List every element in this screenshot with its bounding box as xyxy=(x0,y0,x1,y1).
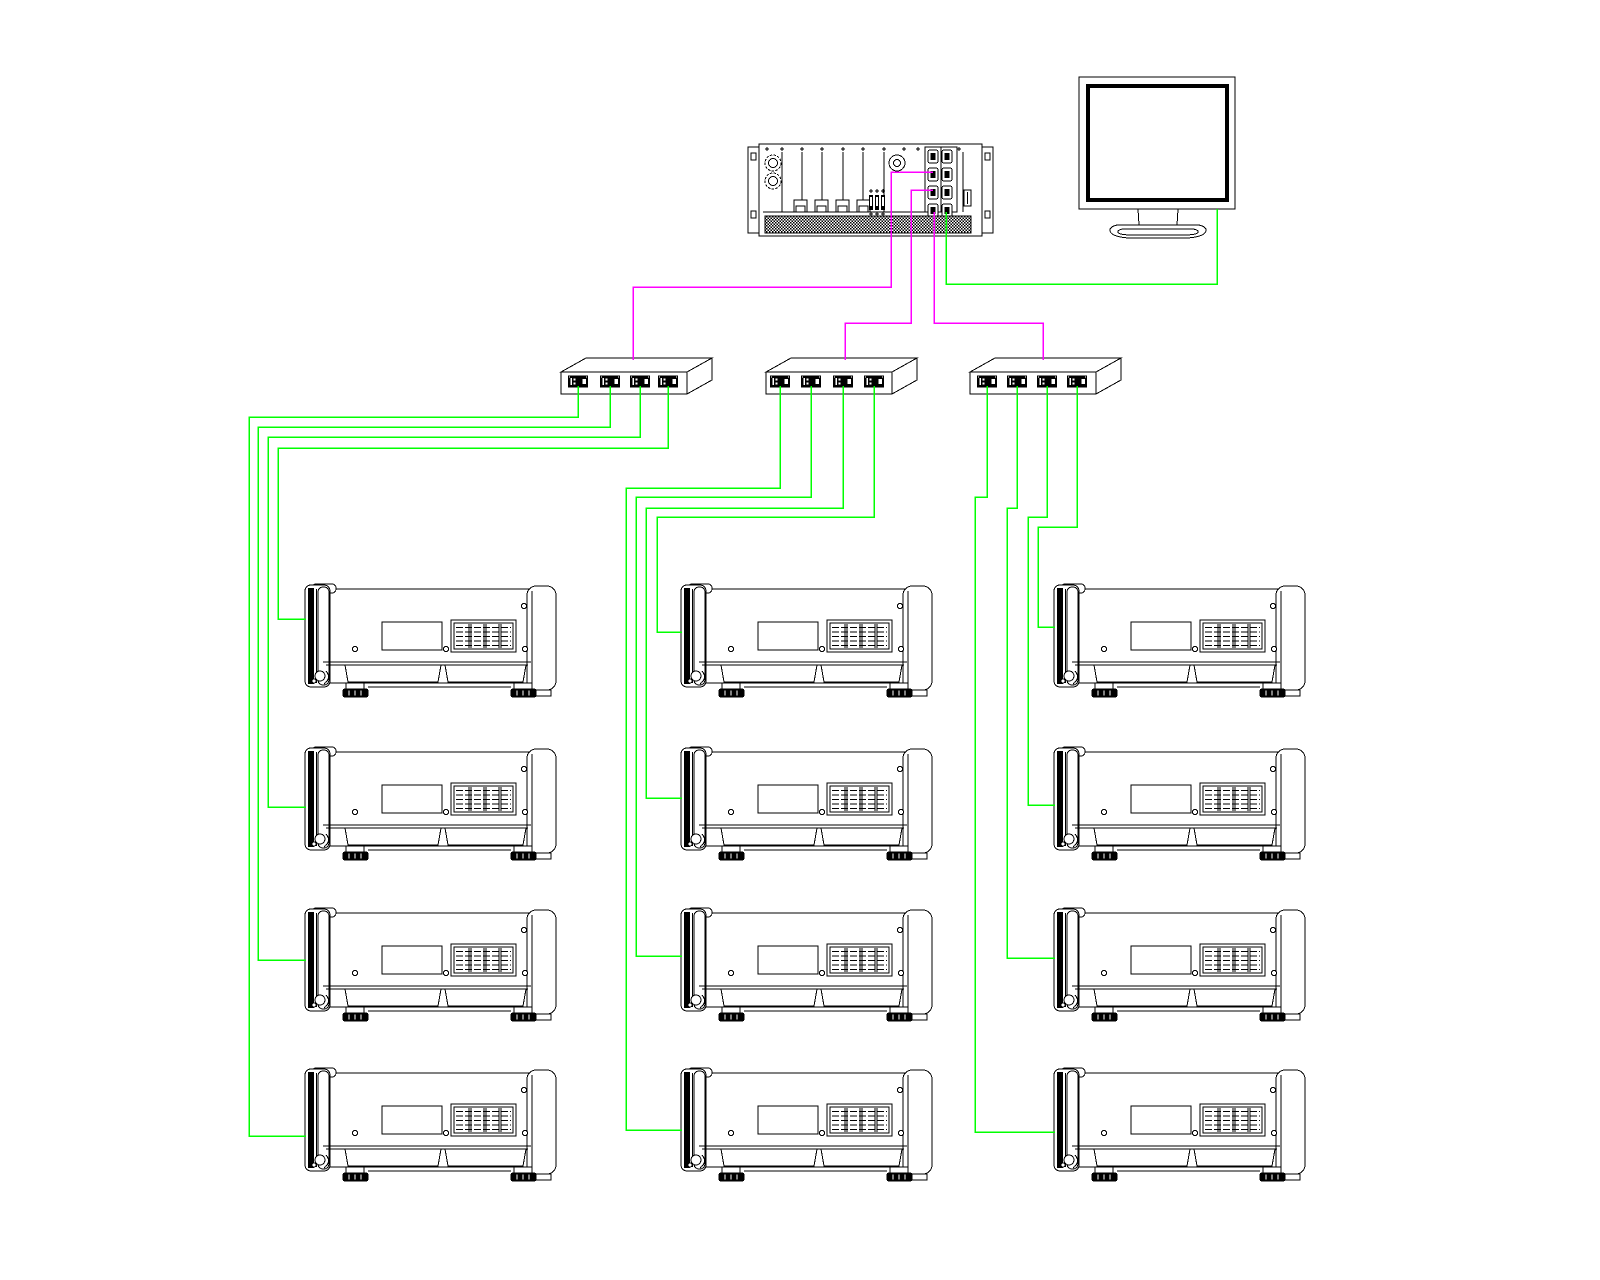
rack-media-server xyxy=(748,144,993,236)
projector-chassis xyxy=(681,1068,932,1181)
video-port-icon xyxy=(928,150,938,163)
projector-chassis xyxy=(1054,747,1305,860)
projector-left-4 xyxy=(305,1068,556,1181)
projector-chassis xyxy=(305,1068,556,1181)
video-port-icon xyxy=(942,168,952,181)
projector-middle-3 xyxy=(681,908,932,1021)
splitter-port-icon xyxy=(865,376,884,387)
video-port-icon xyxy=(928,168,938,181)
video-output-cards xyxy=(925,147,957,217)
projector-left-2 xyxy=(305,747,556,860)
projector-middle-4 xyxy=(681,1068,932,1181)
cabling-diagram xyxy=(0,0,1600,1280)
projector-right-4 xyxy=(1054,1068,1305,1181)
splitter-port-icon xyxy=(1038,376,1057,387)
splitter-port-icon xyxy=(1008,376,1027,387)
lan-cable xyxy=(1007,386,1055,958)
projector-chassis xyxy=(681,747,932,860)
projector-chassis xyxy=(305,908,556,1021)
splitter-port-icon xyxy=(978,376,997,387)
splitter-port-icon xyxy=(802,376,821,387)
projector-chassis xyxy=(1054,908,1305,1021)
splitter-port-icon xyxy=(1068,376,1087,387)
lan-cable xyxy=(975,386,1055,1132)
splitter-port-icon xyxy=(631,376,650,387)
projector-right-1 xyxy=(1054,584,1305,697)
projector-chassis xyxy=(681,908,932,1021)
splitter-port-icon xyxy=(771,376,790,387)
lan-cable xyxy=(1028,386,1055,805)
splitter-port-icon xyxy=(601,376,620,387)
control-monitor xyxy=(1079,77,1235,238)
splitter-port-icon xyxy=(659,376,678,387)
projector-middle-1 xyxy=(681,584,932,697)
splitter-port-icon xyxy=(834,376,853,387)
video-port-icon xyxy=(942,186,952,199)
projector-right-3 xyxy=(1054,908,1305,1021)
video-port-icon xyxy=(942,204,952,217)
projector-chassis xyxy=(305,747,556,860)
projector-chassis xyxy=(1054,584,1305,697)
thumbscrew-icon xyxy=(889,155,905,171)
video-port-icon xyxy=(928,204,938,217)
video-port-icon xyxy=(942,150,952,163)
splitter-3 xyxy=(970,358,1121,394)
projector-middle-2 xyxy=(681,747,932,860)
splitter-1 xyxy=(561,358,712,394)
projector-left-1 xyxy=(305,584,556,697)
splitter-port-icon xyxy=(569,376,588,387)
projector-chassis xyxy=(305,584,556,697)
splitter-2 xyxy=(766,358,917,394)
projector-chassis xyxy=(1054,1068,1305,1181)
monitor-stand xyxy=(1138,209,1178,225)
video-port-icon xyxy=(928,186,938,199)
projector-right-2 xyxy=(1054,747,1305,860)
vent-mesh xyxy=(765,216,971,233)
projector-left-3 xyxy=(305,908,556,1021)
projector-chassis xyxy=(681,584,932,697)
devices-layer xyxy=(305,77,1305,1181)
monitor-screen xyxy=(1088,86,1227,200)
